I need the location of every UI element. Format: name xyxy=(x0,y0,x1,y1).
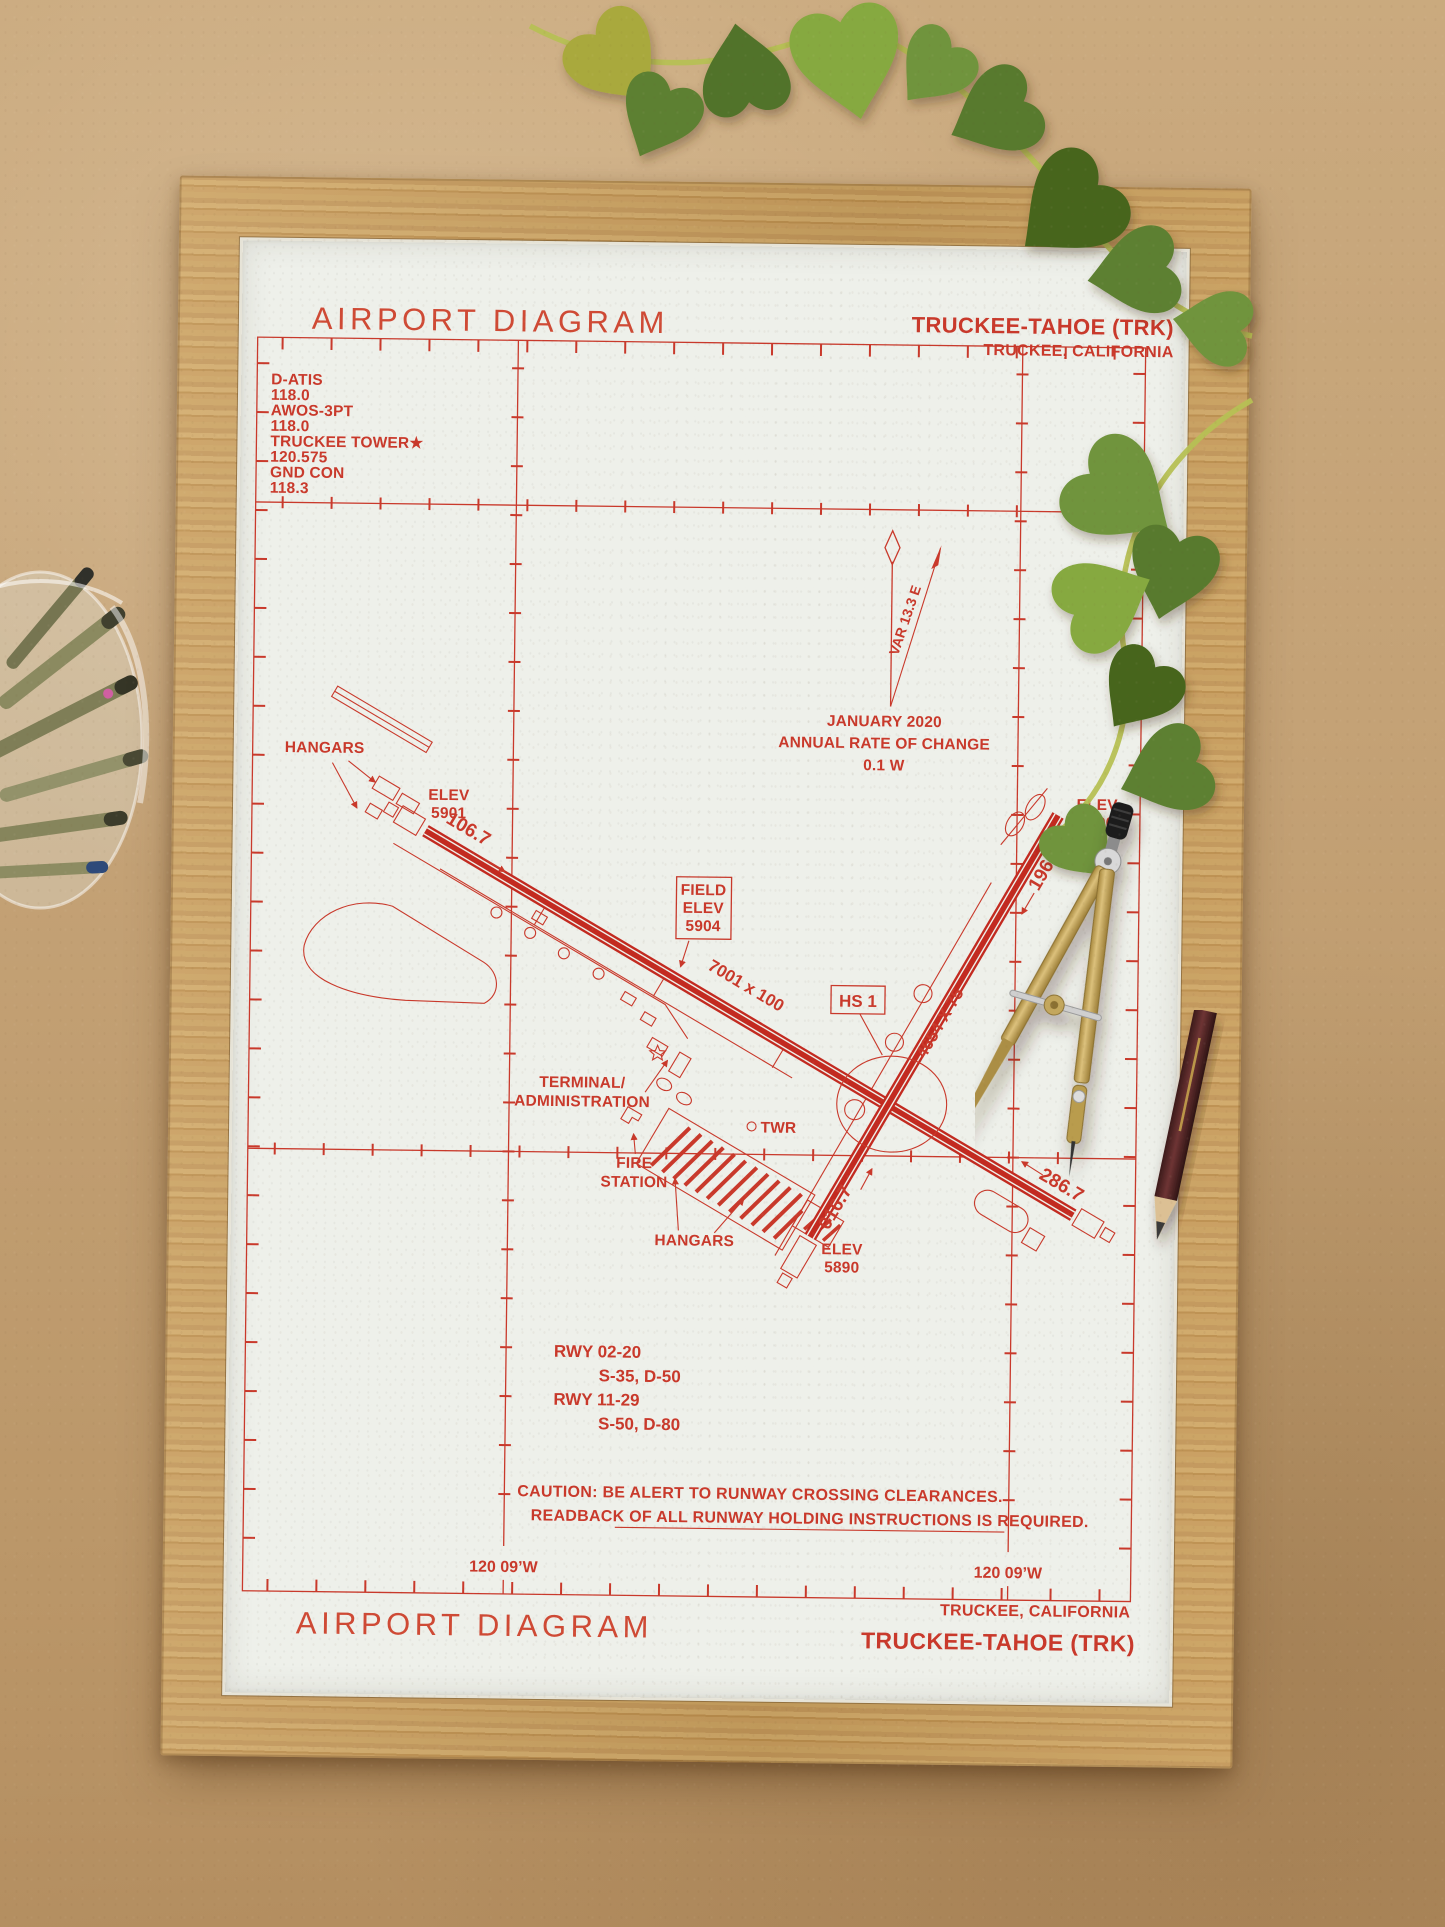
glass-jar-with-pens xyxy=(0,545,198,935)
elev-line: ELEV xyxy=(428,787,470,805)
elev-rwy02: ELEV 5890 xyxy=(821,1241,863,1276)
field-elev-line: FIELD xyxy=(681,882,727,900)
elev-line: 5890 xyxy=(824,1259,859,1276)
glass-jar xyxy=(0,572,142,908)
fire-station-label: STATION xyxy=(600,1173,667,1191)
runway-data-line: S-50, D-80 xyxy=(598,1414,680,1434)
tower-label: TWR xyxy=(760,1120,796,1137)
runway-data-line: RWY 02-20 xyxy=(554,1342,641,1362)
elev-rwy11: ELEV 5901 xyxy=(428,787,470,822)
elev-rwy20: ELEV 5890 xyxy=(1076,797,1118,832)
photo-scene: AIRPORT DIAGRAM TRUCKEE-TAHOE (TRK) TRUC… xyxy=(0,0,1445,1927)
hangars-west-label: HANGARS xyxy=(285,739,365,757)
comm-box: D-ATIS 118.0 AWOS-3PT 118.0 TRUCKEE TOWE… xyxy=(270,371,425,498)
variation-date: JANUARY 2020 xyxy=(827,713,942,731)
variation-rate-label: ANNUAL RATE OF CHANGE xyxy=(778,734,990,754)
airport-diagram-print: AIRPORT DIAGRAM TRUCKEE-TAHOE (TRK) TRUC… xyxy=(225,240,1187,1703)
caution-line: READBACK OF ALL RUNWAY HOLDING INSTRUCTI… xyxy=(531,1507,1089,1531)
terminal-label: ADMINISTRATION xyxy=(514,1093,650,1112)
field-elev-line: 5904 xyxy=(685,918,721,935)
pens xyxy=(0,565,150,879)
footer-title: AIRPORT DIAGRAM xyxy=(296,1605,653,1644)
airport-diagram: AIRPORT DIAGRAM TRUCKEE-TAHOE (TRK) TRUC… xyxy=(225,240,1187,1703)
airport-layout xyxy=(300,686,1124,1294)
hot-spot-callout: HS 1 xyxy=(830,986,885,1056)
tower-symbol xyxy=(747,1122,756,1131)
runway-data-line: S-35, D-50 xyxy=(599,1366,681,1386)
elev-line: ELEV xyxy=(1076,797,1118,815)
elev-line: 5901 xyxy=(431,805,467,822)
latitude-label: 39 19’N xyxy=(1084,505,1140,523)
hangars-south-label: HANGARS xyxy=(654,1232,734,1250)
fire-station-label: FIRE xyxy=(616,1155,652,1172)
chart-title: AIRPORT DIAGRAM xyxy=(312,301,669,340)
airport-name: TRUCKEE-TAHOE (TRK) xyxy=(912,312,1175,340)
elev-line: ELEV xyxy=(821,1241,863,1259)
caution-line: CAUTION: BE ALERT TO RUNWAY CROSSING CLE… xyxy=(517,1483,1003,1506)
footer-city: TRUCKEE, CALIFORNIA xyxy=(940,1602,1131,1621)
terminal-label: TERMINAL/ xyxy=(539,1074,626,1092)
field-elev-callout: FIELD ELEV 5904 xyxy=(676,877,732,968)
runway-11-29 xyxy=(419,828,1079,1219)
longitude-label-right: 120 09’W xyxy=(974,1565,1043,1583)
glass-highlight xyxy=(112,607,146,803)
north-arrow: VAR 13.3 E xyxy=(883,531,942,707)
footer-airport: TRUCKEE-TAHOE (TRK) xyxy=(861,1627,1135,1656)
caution-note: CAUTION: BE ALERT TO RUNWAY CROSSING CLE… xyxy=(517,1483,1089,1533)
runway-data-line: RWY 11-29 xyxy=(553,1390,639,1410)
oak-frame: AIRPORT DIAGRAM TRUCKEE-TAHOE (TRK) TRUC… xyxy=(160,176,1251,1769)
hot-spot-label: HS 1 xyxy=(839,992,877,1011)
variation-rate-value: 0.1 W xyxy=(863,757,905,775)
longitude-label-left: 120 09’W xyxy=(469,1559,538,1577)
elev-line: 5890 xyxy=(1079,815,1114,832)
comm-line: 118.3 xyxy=(270,480,309,497)
runway-02-20-dimension: 4654 X 75 xyxy=(912,985,968,1061)
field-elev-line: ELEV xyxy=(683,900,725,918)
chart-border xyxy=(242,337,1145,1601)
runway-data-block: RWY 02-20 S-35, D-50 RWY 11-29 S-50, D-8… xyxy=(553,1342,681,1434)
